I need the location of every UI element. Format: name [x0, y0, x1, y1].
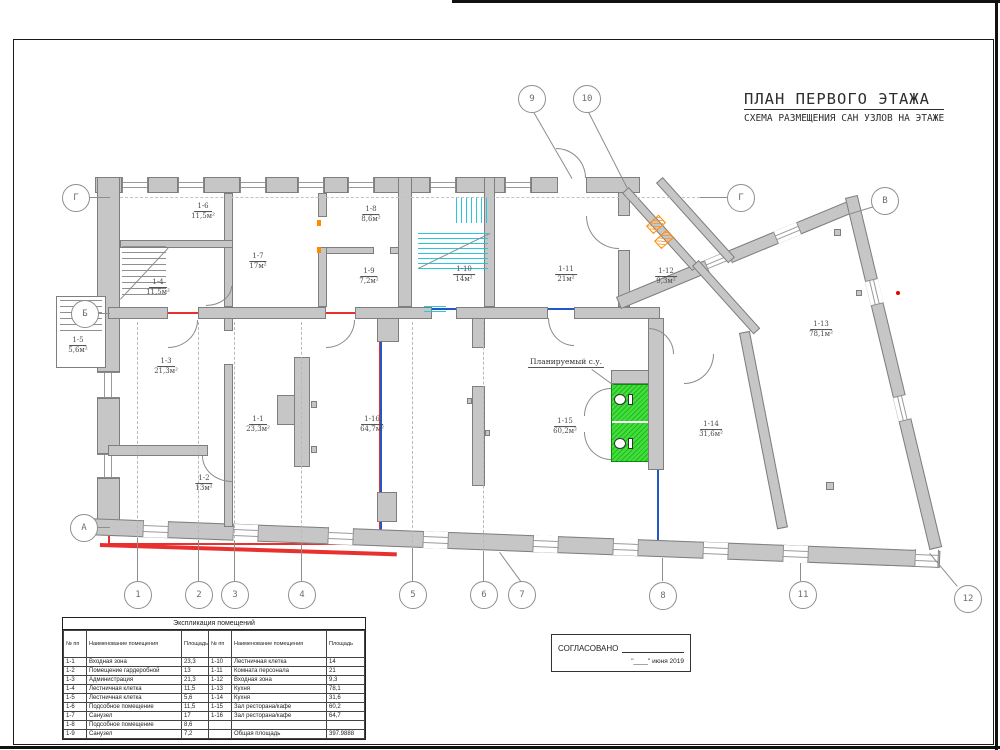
- leader-line: [412, 548, 413, 581]
- room-area: 14м²: [455, 276, 472, 284]
- room-area: 11,5м²: [191, 213, 215, 221]
- window: [865, 278, 884, 306]
- table-cell: Санузел: [87, 730, 182, 739]
- table-cell: Администрация: [87, 676, 182, 685]
- grid-bubble-11: 11: [789, 581, 817, 609]
- planned-sanitary-unit-area: [611, 384, 649, 462]
- room-number: 1-7: [249, 252, 266, 262]
- table-header-cell: Наименование помещения: [87, 631, 182, 658]
- table-cell: Подсобное помещение: [87, 721, 182, 730]
- toilet-bowl-icon: [614, 438, 626, 449]
- signature-line: [622, 643, 684, 653]
- grid-bubble-Г: Г: [727, 184, 755, 212]
- axis-line: [301, 322, 302, 548]
- room-label-1-4: 1-411,5м²: [146, 278, 170, 298]
- door-arc: [648, 328, 674, 354]
- wall-segment: [108, 307, 168, 319]
- leader-line: [88, 197, 110, 198]
- table-cell: 1-9: [64, 730, 87, 739]
- room-number: 1-6: [194, 202, 211, 212]
- window: [430, 177, 456, 193]
- table-cell: 1-10: [209, 658, 232, 667]
- marker: [317, 220, 321, 226]
- table-cell: Общая площадь: [232, 730, 327, 739]
- table-row: 1-9Санузел7,2Общая площадь397.9888: [64, 730, 365, 739]
- window: [327, 527, 354, 545]
- door-arc: [684, 354, 714, 384]
- table-cell: Лестничная клетка: [87, 685, 182, 694]
- room-area: 21,3м²: [154, 368, 178, 376]
- window: [97, 454, 120, 478]
- room-number: 1-9: [360, 267, 377, 277]
- grid-bubble-5: 5: [399, 581, 427, 609]
- room-area: 64,7м²: [360, 426, 384, 434]
- table-cell: 8,6: [182, 721, 209, 730]
- approval-label: СОГЛАСОВАНО: [558, 644, 618, 653]
- stairs-icon: [456, 197, 488, 223]
- wall-segment: [692, 260, 760, 334]
- room-number: 1-16: [361, 415, 383, 425]
- table-cell: [209, 721, 232, 730]
- table-row: 1-4Лестничная клетка11,51-13Кухня78,1: [64, 685, 365, 694]
- stairs-icon: [424, 306, 446, 315]
- wall-segment: [277, 395, 295, 425]
- room-number: 1-11: [555, 265, 577, 275]
- grid-bubble-3: 3: [221, 581, 249, 609]
- table-header-cell: Площадь: [182, 631, 209, 658]
- table-cell: 1-3: [64, 676, 87, 685]
- table-cell: Кухня: [232, 685, 327, 694]
- room-label-1-3: 1-321,3м²: [154, 357, 178, 377]
- leader-line: [499, 552, 521, 582]
- room-area: 31,6м²: [699, 431, 723, 439]
- leader-line: [198, 540, 199, 581]
- wall-segment: [224, 318, 233, 331]
- marker: [317, 247, 321, 253]
- leader-line: [234, 541, 235, 581]
- table-cell: 1-5: [64, 694, 87, 703]
- table-cell: 1-2: [64, 667, 87, 676]
- table-cell: Лестничная клетка: [87, 694, 182, 703]
- room-number: 1-14: [700, 420, 722, 430]
- room-label-1-2: 1-213м²: [195, 474, 212, 494]
- table-cell: 1-1: [64, 658, 87, 667]
- table-cell: [209, 730, 232, 739]
- table-cell: 1-15: [209, 703, 232, 712]
- room-area: 23,3м²: [246, 426, 270, 434]
- wall-segment: [324, 177, 348, 193]
- table-cell: 1-11: [209, 667, 232, 676]
- room-label-1-6: 1-611,5м²: [191, 202, 215, 222]
- table-cell: [327, 721, 365, 730]
- column-peg: [311, 401, 317, 408]
- table-cell: 78,1: [327, 685, 365, 694]
- table-row: 1-5Лестничная клетка5,61-14Кухня31,6: [64, 694, 365, 703]
- room-area: 9,3м²: [656, 278, 675, 286]
- room-number: 1-4: [149, 278, 166, 288]
- grid-bubble-2: 2: [185, 581, 213, 609]
- window: [773, 222, 802, 244]
- toilet-icon: [614, 393, 633, 406]
- room-area: 17м²: [249, 263, 266, 271]
- grid-bubble-В: В: [871, 187, 899, 215]
- room-label-1-12: 1-129,3м²: [655, 267, 677, 287]
- table-cell: [232, 721, 327, 730]
- grid-bubble-А: А: [70, 514, 98, 542]
- rooms-table: № ппНаименование помещенияПлощадь№ ппНаи…: [63, 630, 365, 739]
- wall-segment: [326, 247, 374, 254]
- wall-segment: [318, 247, 327, 307]
- column-peg: [826, 482, 834, 490]
- table-cell: Подсобное помещение: [87, 703, 182, 712]
- table-cell: 5,6: [182, 694, 209, 703]
- wall-segment: [456, 177, 505, 193]
- table-cell: 17: [182, 712, 209, 721]
- axis-line: [137, 322, 138, 548]
- explication-table: Экспликация помещений № ппНаименование п…: [62, 617, 366, 740]
- window: [702, 542, 729, 560]
- table-header-cell: № пп: [209, 631, 232, 658]
- room-label-1-16: 1-1664,7м²: [360, 415, 384, 435]
- axis-line: [198, 322, 199, 548]
- wall-segment: [266, 177, 298, 193]
- window: [122, 177, 148, 193]
- table-cell: Санузел: [87, 712, 182, 721]
- wall-segment: [456, 307, 548, 319]
- wall-segment: [656, 177, 735, 263]
- grid-bubble-Б: Б: [71, 300, 99, 328]
- grid-bubble-8: 8: [649, 582, 677, 610]
- table-cell: Входная зона: [232, 676, 327, 685]
- table-cell: Помещение гардеробной: [87, 667, 182, 676]
- window: [532, 535, 559, 553]
- wall-segment: [845, 195, 942, 550]
- stall-partition: [612, 421, 648, 423]
- room-label-1-10: 1-1014м²: [453, 265, 475, 285]
- table-cell: 11,5: [182, 685, 209, 694]
- grid-bubble-12: 12: [954, 585, 982, 613]
- leader-line: [137, 538, 138, 581]
- table-cell: 64,7: [327, 712, 365, 721]
- grid-bubble-10: 10: [573, 85, 601, 113]
- table-row: 1-2Помещение гардеробной131-11Комната пе…: [64, 667, 365, 676]
- grid-bubble-7: 7: [508, 581, 536, 609]
- wall-segment: [377, 318, 399, 342]
- room-label-1-13: 1-1378,1м²: [809, 320, 833, 340]
- table-row: 1-8Подсобное помещение8,6: [64, 721, 365, 730]
- table-cell: 397.9888: [327, 730, 365, 739]
- table-cell: Комната персонала: [232, 667, 327, 676]
- toilet-tank-icon: [628, 394, 633, 405]
- room-number: 1-12: [655, 267, 677, 277]
- axis-line: [412, 322, 413, 548]
- room-number: 1-1: [249, 415, 266, 425]
- room-area: 5,6м²: [68, 347, 87, 355]
- leader-line: [800, 563, 801, 581]
- room-number: 1-8: [362, 205, 379, 215]
- door-arc: [556, 148, 586, 178]
- column-peg: [467, 398, 472, 404]
- window: [422, 531, 449, 549]
- table-cell: 14: [327, 658, 365, 667]
- axis-line: [110, 197, 700, 198]
- window: [97, 372, 120, 398]
- axis-line: [234, 322, 235, 548]
- table-cell: 1-14: [209, 694, 232, 703]
- red-scope-outline: [108, 312, 381, 545]
- table-cell: 23,3: [182, 658, 209, 667]
- leader-line: [929, 553, 957, 587]
- leader-line: [301, 544, 302, 581]
- room-area: 60,2м²: [553, 428, 577, 436]
- room-area: 8,6м²: [361, 216, 380, 224]
- table-cell: 13: [182, 667, 209, 676]
- window: [240, 177, 266, 193]
- table-cell: Зал ресторана/кафе: [232, 712, 327, 721]
- column-peg: [485, 430, 490, 436]
- room-area: 21м²: [557, 276, 574, 284]
- window: [612, 538, 639, 556]
- room-label-1-1: 1-123,3м²: [246, 415, 270, 435]
- approval-block: СОГЛАСОВАНО "____" июня 2019: [551, 634, 691, 672]
- table-cell: Входная зона: [87, 658, 182, 667]
- table-row: 1-1Входная зона23,31-10Лестничная клетка…: [64, 658, 365, 667]
- room-area: 78,1м²: [809, 331, 833, 339]
- room-label-1-8: 1-88,6м²: [361, 205, 380, 225]
- window: [782, 545, 809, 563]
- toilet-icon: [614, 437, 633, 450]
- approval-date-line: "____" июня 2019: [558, 658, 684, 665]
- table-cell: 7,2: [182, 730, 209, 739]
- window: [348, 177, 374, 193]
- column-peg: [856, 290, 862, 296]
- table-cell: 1-8: [64, 721, 87, 730]
- table-header-row: № ппНаименование помещенияПлощадь№ ппНаи…: [64, 631, 365, 658]
- column-peg: [311, 446, 317, 453]
- table-cell: 1-13: [209, 685, 232, 694]
- window: [178, 177, 204, 193]
- leader-line: [700, 197, 727, 198]
- room-number: 1-3: [157, 357, 174, 367]
- table-cell: 9,3: [327, 676, 365, 685]
- wall-segment: [611, 370, 649, 384]
- table-cell: 1-7: [64, 712, 87, 721]
- table-row: 1-7Санузел171-16Зал ресторана/кафе64,7: [64, 712, 365, 721]
- axis-line: [483, 322, 484, 548]
- room-area: 11,5м²: [146, 289, 170, 297]
- grid-bubble-4: 4: [288, 581, 316, 609]
- room-number: 1-2: [195, 474, 212, 484]
- grid-bubble-1: 1: [124, 581, 152, 609]
- toilet-bowl-icon: [614, 394, 626, 405]
- wall-segment: [294, 357, 310, 467]
- wall-segment: [148, 177, 178, 193]
- table-cell: Зал ресторана/кафе: [232, 703, 327, 712]
- marker-dot: [896, 291, 900, 295]
- window: [505, 177, 531, 193]
- table-cell: 21: [327, 667, 365, 676]
- table-row: 1-3Администрация21,31-12Входная зона9,3: [64, 676, 365, 685]
- grid-bubble-Г: Г: [62, 184, 90, 212]
- table-cell: Лестничная клетка: [232, 658, 327, 667]
- table-header-cell: Наименование помещения: [232, 631, 327, 658]
- toilet-tank-icon: [628, 438, 633, 449]
- room-label-1-14: 1-1431,6м²: [699, 420, 723, 440]
- wall-segment: [622, 187, 699, 271]
- grid-bubble-6: 6: [470, 581, 498, 609]
- leader-line: [532, 110, 572, 179]
- window: [298, 177, 324, 193]
- table-cell: 31,6: [327, 694, 365, 703]
- room-number: 1-13: [810, 320, 832, 330]
- table-cell: 60,2: [327, 703, 365, 712]
- table-cell: 21,3: [182, 676, 209, 685]
- room-number: 1-5: [69, 336, 86, 346]
- room-label-1-7: 1-717м²: [249, 252, 266, 272]
- window: [142, 520, 169, 538]
- table-cell: 1-16: [209, 712, 232, 721]
- table-header-cell: № пп: [64, 631, 87, 658]
- window: [914, 549, 939, 567]
- room-number: 1-15: [554, 417, 576, 427]
- room-area: 7,2м²: [359, 278, 378, 286]
- column-peg: [834, 229, 841, 236]
- leader-line: [662, 558, 663, 581]
- wall-segment: [108, 445, 208, 456]
- table-header-cell: Площадь: [327, 631, 365, 658]
- leader-line: [483, 551, 484, 581]
- grid-bubble-9: 9: [518, 85, 546, 113]
- wall-segment: [204, 177, 240, 193]
- table-cell: 1-4: [64, 685, 87, 694]
- window: [232, 524, 259, 542]
- room-area: 13м²: [195, 485, 212, 493]
- door-arc: [586, 216, 619, 249]
- wall-segment: [224, 364, 233, 527]
- table-cell: Кухня: [232, 694, 327, 703]
- planned-su-callout: Планируемый с.у.: [528, 357, 604, 368]
- table-cell: 11,5: [182, 703, 209, 712]
- wall-segment: [377, 492, 397, 522]
- wall-segment: [198, 307, 326, 319]
- room-label-1-9: 1-97,2м²: [359, 267, 378, 287]
- room-label-1-11: 1-1121м²: [555, 265, 577, 285]
- table-cell: 1-12: [209, 676, 232, 685]
- room-label-1-15: 1-1560,2м²: [553, 417, 577, 437]
- table-cell: 1-6: [64, 703, 87, 712]
- table-title: Экспликация помещений: [63, 618, 365, 630]
- room-label-1-5: 1-55,6м²: [68, 336, 87, 356]
- window: [893, 394, 912, 422]
- wall-segment: [531, 177, 558, 193]
- wall-segment: [739, 331, 788, 529]
- table-row: 1-6Подсобное помещение11,51-15Зал рестор…: [64, 703, 365, 712]
- room-number: 1-10: [453, 265, 475, 275]
